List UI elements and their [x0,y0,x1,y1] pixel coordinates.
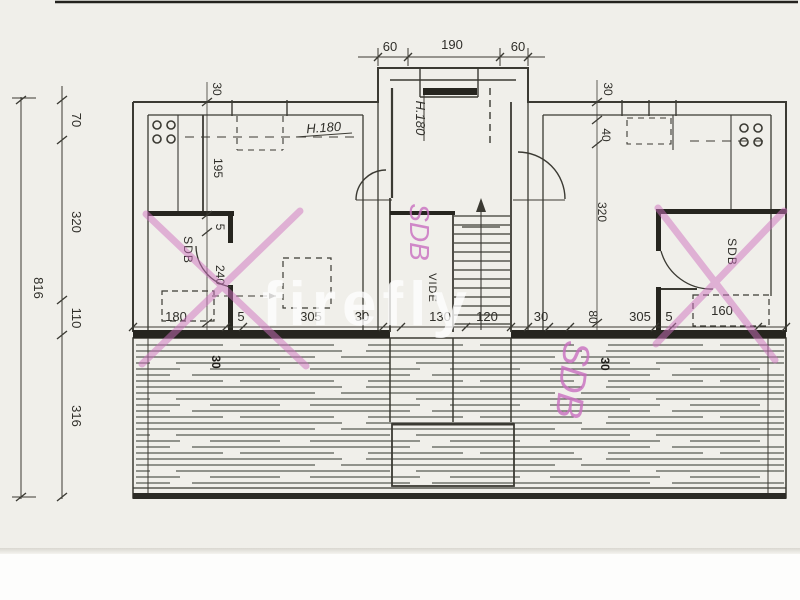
dim-left-316: 316 [69,405,84,427]
cooktop-right-icon [740,124,762,146]
pink-sdb-note-center: SDB [404,203,435,261]
right-window-dashed [627,118,671,144]
door-arc-left-wing [356,170,386,200]
dim-int-5: 5 [213,224,227,231]
floor-plan-drawing: 60 190 60 816 70 320 110 316 30 195 5 24… [0,0,800,600]
door-arc-right-wing [518,152,565,199]
terrace-deck [133,338,786,499]
dim-row-5b: 5 [665,309,672,324]
dim-row-80: 80 [586,310,600,324]
left-window-dashed [237,116,283,150]
lower-wall-right [511,330,786,338]
deck-bottom-band [133,493,786,499]
dim-left-70: 70 [69,113,84,127]
dim-top-190: 190 [441,37,463,52]
firefly-watermark: firefly [262,270,473,339]
dim-row-120: 120 [476,309,498,324]
floor-plan-scan: 60 190 60 816 70 320 110 316 30 195 5 24… [0,0,800,600]
dim-int-40: 40 [599,128,613,142]
dim-int-30-right: 30 [601,82,615,96]
h180-note-bay: H.180 [413,101,428,136]
dim-int-320-right: 320 [595,202,609,222]
deck-plank-hatch [136,342,784,488]
dim-top-60-right: 60 [511,39,525,54]
cooktop-left-icon [153,121,175,143]
right-sdb-top-wall [656,209,786,214]
stair-up-arrow-icon [476,198,486,212]
dim-row-30b: 30 [534,309,548,324]
bay-window-sill [423,88,477,95]
wall-mark-30-right: 30 [598,357,612,371]
wall-mark-30-left: 30 [209,355,223,369]
dim-overall-816: 816 [31,277,46,299]
left-sdb-top-wall [148,211,234,216]
entry-bay [356,68,565,200]
dim-int-195: 195 [211,158,225,178]
dim-left-320: 320 [69,211,84,233]
dim-left-110: 110 [69,308,84,329]
dim-row-305b: 305 [629,309,651,324]
dim-top-60-left: 60 [383,39,397,54]
dim-int-30-left: 30 [210,82,224,96]
